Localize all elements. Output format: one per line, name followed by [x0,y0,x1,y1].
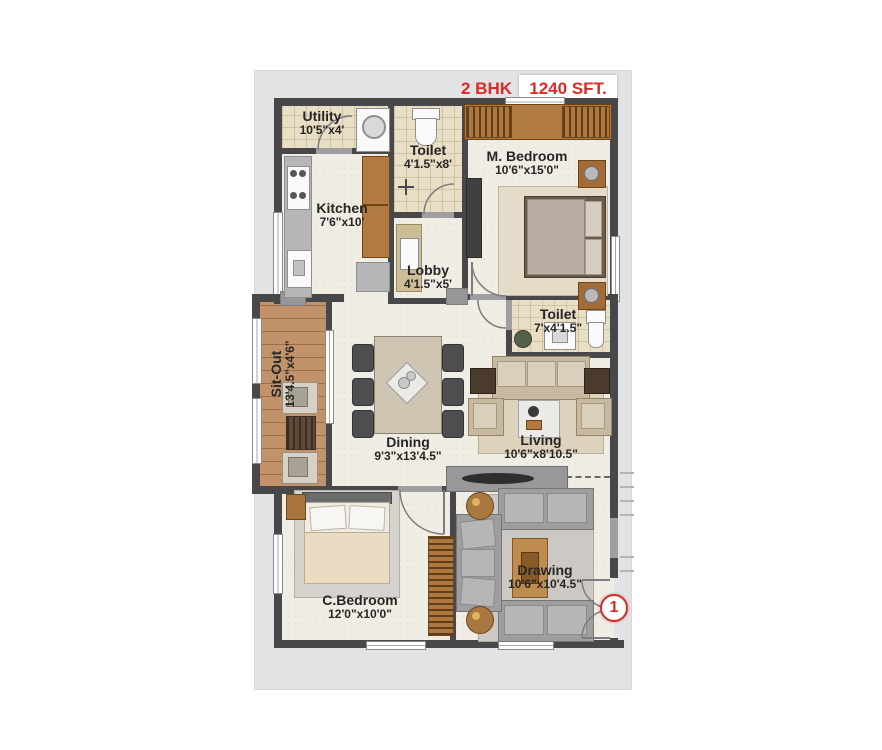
drawing-coffee-table-inlay [521,552,539,584]
wall-top-toilet [390,98,468,106]
tick-mark [620,472,634,474]
mbedroom-wardrobe-doors [466,106,512,138]
side-table [584,368,610,394]
utility-door-gap [316,148,352,154]
round-table-decor-icon [472,612,480,620]
refrigerator [356,262,390,292]
sofa-cushion [547,605,587,635]
side-table [470,368,496,394]
toilet2-bowl [588,322,604,348]
tick-mark [620,514,634,516]
round-side-table [466,606,494,634]
round-table-decor-icon [472,498,480,506]
mbedroom-dresser [466,178,482,258]
toilet1-bowl [415,118,437,146]
pillow [585,201,602,237]
window-sitout-1 [252,318,262,384]
kitchen-cabinet-divider [362,204,388,206]
bhk-label: 2 BHK [448,79,512,99]
sofa-cushion [460,518,497,549]
dining-chair [442,378,464,406]
kitchen-cabinet [362,156,390,258]
cbedroom-wardrobe [428,536,454,636]
burner-icon [290,170,297,177]
sofa-cushion [547,493,587,523]
living-drawing-divider [566,476,610,478]
washing-machine-drum-icon [362,115,386,139]
sofa-cushion [557,361,586,387]
tick-mark [620,500,634,502]
armchair-cushion [473,403,497,429]
tick-mark [620,486,634,488]
mbedroom-wardrobe-doors [562,106,610,138]
master-bed-blanket [527,199,585,275]
dining-chair [352,378,374,406]
burner-icon [299,192,306,199]
sofa-cushion [504,493,544,523]
dining-chair [352,344,374,372]
wall-right-entry-bottom [610,638,618,648]
dining-chair [442,410,464,438]
floor-plan-canvas: 2 BHK 1240 SFT. [0,0,882,750]
burner-icon [299,170,306,177]
tick-mark [620,570,634,572]
sofa-cushion [461,549,495,577]
entrance-marker: 1 [600,594,628,622]
toilet1-door-gap [422,212,454,218]
pillow [348,505,385,531]
pillow [585,239,602,275]
column-lobby [446,288,468,305]
sitout-chair-cushion [288,457,308,477]
wall-right-entry-top [610,558,618,578]
window-kitchen [273,212,283,298]
window-cbedroom [273,534,283,594]
window-mbedroom [611,236,620,302]
lobby-washbasin [400,238,419,270]
sitout-chair-cushion [288,387,308,407]
armchair-cushion [581,403,605,429]
round-side-table [466,492,494,520]
shower-icon-bar [405,179,407,195]
plant-icon [514,330,532,348]
sitout-table [286,416,316,450]
pillow [309,505,347,531]
sofa-cushion [504,605,544,635]
window-bottom-1 [366,641,426,650]
coffee-table-tray [526,420,542,430]
coffee-table [518,400,560,438]
nightstand [286,494,306,520]
window-sitout-2 [252,398,262,464]
lamp-icon [584,166,599,181]
coffee-table-decor-icon [528,406,539,417]
lamp-icon [584,288,599,303]
sofa-cushion [527,361,556,387]
wall-top-utility [274,98,394,106]
tick-mark [620,556,634,558]
sink-basin [293,260,305,276]
dining-chair [352,410,374,438]
plate-icon [406,371,416,381]
tv-icon [462,473,534,484]
sofa-cushion [460,577,496,608]
toilet2-door-gap [506,300,512,330]
window-bottom-2 [498,641,554,650]
dining-chair [442,344,464,372]
cbedroom-door-gap [398,486,442,492]
sitout-glass-door [325,330,334,424]
sofa-cushion [497,361,526,387]
toilet2-basin [552,329,568,343]
burner-icon [290,192,297,199]
child-bed-blanket [304,532,390,584]
wall-right-opening [610,518,618,558]
